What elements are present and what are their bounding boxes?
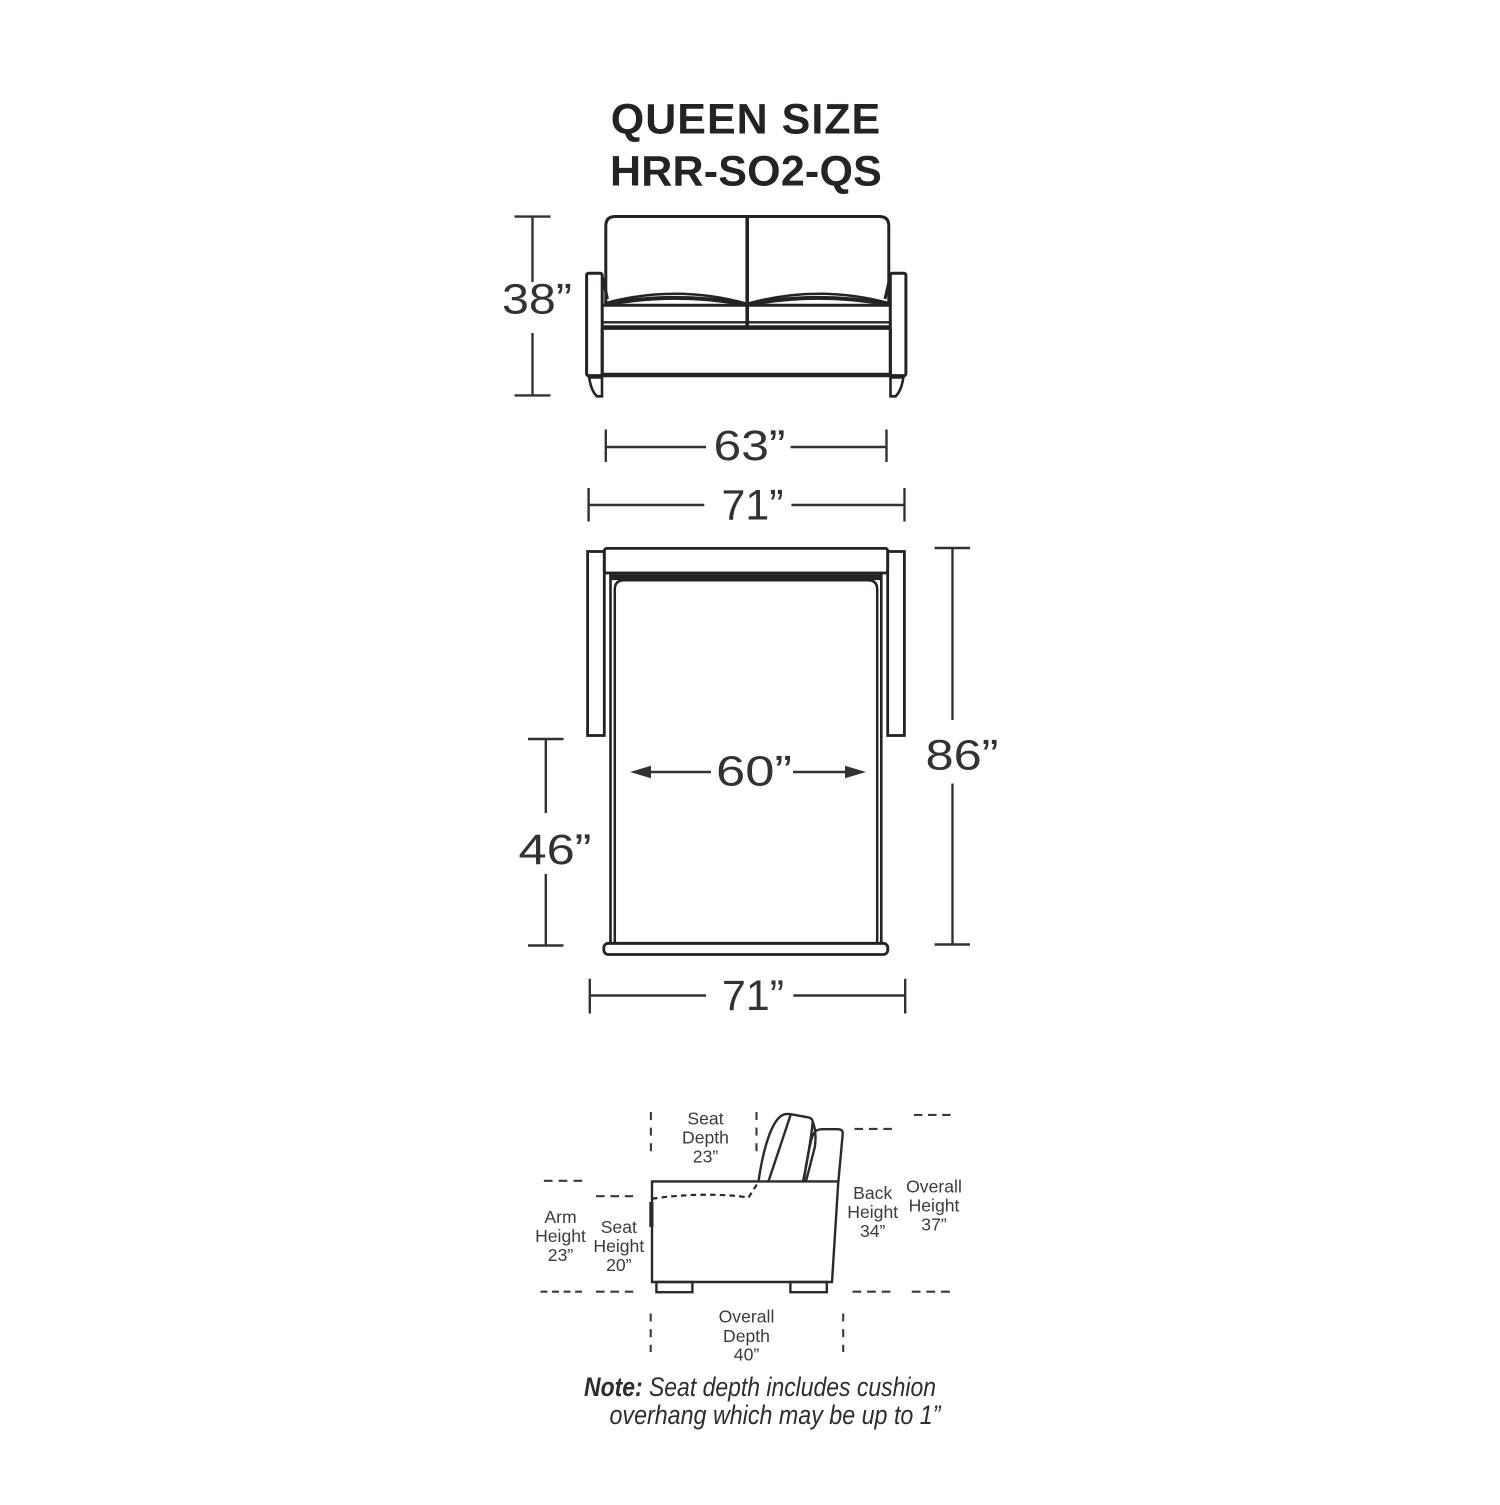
svg-text:40”: 40”: [734, 1345, 760, 1365]
svg-text:Back: Back: [853, 1183, 892, 1203]
svg-text:37”: 37”: [921, 1215, 947, 1235]
svg-text:QUEEN SIZE: QUEEN SIZE: [611, 96, 881, 144]
svg-text:Height: Height: [847, 1202, 898, 1222]
svg-text:23”: 23”: [548, 1245, 574, 1265]
svg-text:86”: 86”: [926, 732, 999, 780]
svg-text:23”: 23”: [693, 1146, 719, 1166]
svg-text:71”: 71”: [722, 973, 784, 1020]
svg-text:Seat: Seat: [601, 1217, 637, 1237]
svg-text:Overall: Overall: [906, 1177, 962, 1197]
svg-text:Height: Height: [593, 1236, 644, 1256]
svg-text:Height: Height: [535, 1226, 586, 1246]
svg-text:60”: 60”: [716, 748, 792, 796]
svg-text:overhang which may be up to 1”: overhang which may be up to 1”: [610, 1400, 942, 1430]
svg-text:Height: Height: [909, 1196, 960, 1216]
svg-text:34”: 34”: [860, 1221, 886, 1241]
svg-text:Seat: Seat: [687, 1108, 723, 1128]
svg-text:71”: 71”: [722, 483, 784, 530]
svg-text:Depth: Depth: [723, 1326, 770, 1346]
svg-text:HRR-SO2-QS: HRR-SO2-QS: [610, 148, 882, 196]
svg-text:Arm: Arm: [544, 1207, 576, 1227]
svg-text:Overall: Overall: [719, 1307, 775, 1327]
svg-text:63”: 63”: [714, 423, 786, 470]
svg-text:46”: 46”: [519, 826, 592, 874]
svg-text:38”: 38”: [502, 277, 572, 324]
svg-text:Note: Seat depth includes cush: Note: Seat depth includes cushion: [584, 1372, 936, 1402]
svg-text:20”: 20”: [606, 1255, 632, 1275]
svg-text:Depth: Depth: [682, 1127, 729, 1147]
